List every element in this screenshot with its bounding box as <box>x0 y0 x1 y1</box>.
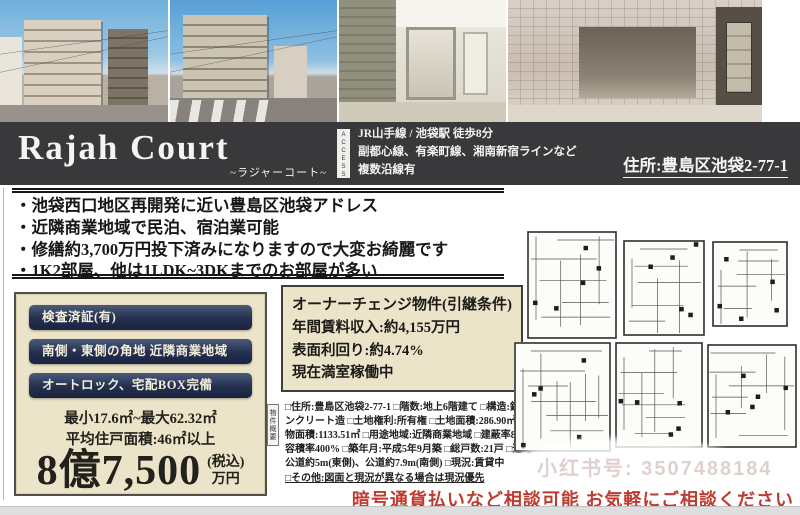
price-unit: 万円 <box>212 472 240 487</box>
crosswalk-shape <box>170 100 270 122</box>
income-box: オーナーチェンジ物件(引継条件) 年間賃料収入:約4,155万円 表面利回り:約… <box>281 285 523 392</box>
glass-door-shape <box>406 27 456 100</box>
road-shape <box>0 105 168 122</box>
tile-wall-shape <box>339 0 396 105</box>
frame-border <box>3 188 4 500</box>
photo-strip <box>0 0 800 122</box>
floor-shape <box>508 105 762 122</box>
highlight-item: ・近隣商業地域で民泊、宿泊業可能 <box>15 218 505 238</box>
property-overview: 物件概要 □住所:豊島区池袋2-77-1 □階数:地上6階建て □構造:鉄筋コン… <box>267 401 547 486</box>
floor-shape <box>339 102 506 122</box>
photo-building-exterior-2 <box>170 0 337 122</box>
access-line: 副都心線、有楽町線、湘南新宿ラインなど <box>358 144 577 162</box>
feature-badge-corner-lot: 南側・東側の角地 近隣商業地域 <box>29 339 252 364</box>
occupancy-line: 現在満室稼働中 <box>292 362 512 384</box>
unit-size-range: 最小17.6㎡~最大62.32㎡ <box>29 407 252 428</box>
divider-bottom <box>12 274 504 279</box>
power-lines <box>170 0 337 85</box>
overview-label: 物件概要 <box>267 404 279 446</box>
property-name-kana: ~ラジャーコート~ <box>230 164 327 180</box>
overview-other-note: □その他:図面と現況が異なる場合は現況優先 <box>285 471 543 486</box>
photo-building-exterior-1 <box>0 0 168 122</box>
floor-plan-5 <box>615 342 703 448</box>
photo-entrance-2 <box>508 0 762 122</box>
property-address: 住所:豊島区池袋2-77-1 <box>623 152 788 178</box>
overview-details: □住所:豊島区池袋2-77-1 □階数:地上6階建て □構造:鉄筋コンクリート造… <box>285 401 543 471</box>
floor-plan-6 <box>707 344 797 448</box>
property-flyer: Rajah Court ~ラジャーコート~ ACCESS JR山手線 / 池袋駅… <box>0 0 800 515</box>
power-lines <box>0 0 168 85</box>
title-bar: Rajah Court ~ラジャーコート~ ACCESS JR山手線 / 池袋駅… <box>0 122 800 185</box>
floor-plan-1 <box>527 231 617 339</box>
bottom-edge <box>0 506 800 515</box>
divider-top <box>12 188 504 193</box>
price-tax-note: (税込) <box>207 455 244 470</box>
floor-plan-2 <box>623 240 705 336</box>
annual-rent-line: 年間賃料収入:約4,155万円 <box>292 317 512 339</box>
highlight-list: ・池袋西口地区再開発に近い豊島区池袋アドレス ・近隣商業地域で民泊、宿泊業可能 … <box>15 196 505 283</box>
watermark-text: 小红书号: 3507488184 <box>537 452 772 481</box>
price-amount: 8億7,500 <box>37 450 202 492</box>
price-suffix: (税込) 万円 <box>207 454 244 489</box>
price-row: 8億7,500 (税込) 万円 <box>29 450 252 492</box>
access-label: ACCESS <box>337 129 350 178</box>
property-name: Rajah Court <box>18 128 230 168</box>
floor-plan-4 <box>514 342 611 452</box>
access-line: JR山手線 / 池袋駅 徒歩8分 <box>358 126 577 144</box>
owner-change-line: オーナーチェンジ物件(引継条件) <box>292 294 512 317</box>
access-info: JR山手線 / 池袋駅 徒歩8分 副都心線、有楽町線、湘南新宿ラインなど 複数沿… <box>358 126 577 179</box>
floor-plan-3 <box>712 241 788 327</box>
average-unit-area: 平均住戸面積:46㎡以上 <box>29 428 252 449</box>
highlight-item: ・池袋西口地区再開発に近い豊島区池袋アドレス <box>15 196 505 216</box>
photo-entrance-1 <box>339 0 506 122</box>
door-shape <box>463 32 488 95</box>
corridor-shape <box>579 27 696 98</box>
photo-strip-margin <box>764 0 800 122</box>
highlight-item: ・修繕約3,700万円投下済みになりますので大変お綺麗です <box>15 240 505 260</box>
access-line: 複数沿線有 <box>358 162 577 180</box>
yield-line: 表面利回り:約4.74% <box>292 340 512 362</box>
feature-badge-inspection: 検査済証(有) <box>29 305 252 330</box>
mailbox-shape <box>726 22 751 93</box>
feature-badge-autolock: オートロック、宅配BOX完備 <box>29 373 252 398</box>
price-box: 検査済証(有) 南側・東側の角地 近隣商業地域 オートロック、宅配BOX完備 最… <box>14 292 267 496</box>
